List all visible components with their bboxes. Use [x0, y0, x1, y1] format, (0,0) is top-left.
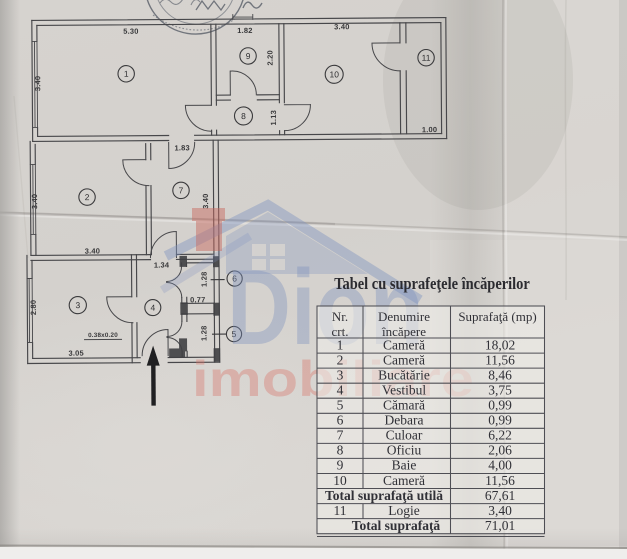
svg-text:4: 4	[337, 383, 344, 398]
svg-text:3,40: 3,40	[488, 503, 512, 518]
svg-text:6,22: 6,22	[488, 428, 512, 443]
svg-text:0.38x0.20: 0.38x0.20	[88, 332, 118, 339]
svg-text:11,56: 11,56	[485, 352, 515, 367]
svg-text:Culoar: Culoar	[386, 428, 423, 443]
svg-text:1.13: 1.13	[269, 110, 278, 125]
svg-text:Debara: Debara	[385, 413, 424, 428]
svg-text:Denumire: Denumire	[378, 309, 430, 324]
svg-text:Cămară: Cămară	[383, 398, 425, 413]
svg-text:Cameră: Cameră	[383, 473, 425, 488]
svg-text:Nr.: Nr.	[332, 309, 348, 324]
svg-text:Tabel cu suprafeţele încăperil: Tabel cu suprafeţele încăperilor	[334, 275, 530, 293]
svg-text:3: 3	[75, 300, 80, 310]
svg-text:Total suprafaţă utilă: Total suprafaţă utilă	[325, 488, 443, 503]
svg-text:1.28: 1.28	[199, 326, 208, 341]
svg-text:67,61: 67,61	[485, 488, 515, 503]
svg-text:3.40: 3.40	[30, 194, 39, 209]
svg-text:Logie: Logie	[388, 503, 420, 518]
svg-text:10: 10	[333, 473, 347, 488]
svg-text:1.00: 1.00	[422, 125, 437, 134]
svg-text:2: 2	[337, 352, 344, 367]
svg-text:10: 10	[329, 69, 339, 79]
svg-text:11,56: 11,56	[485, 473, 515, 488]
svg-text:Cameră: Cameră	[383, 337, 425, 352]
svg-text:3,75: 3,75	[488, 383, 512, 398]
svg-text:Baie: Baie	[392, 458, 417, 473]
svg-text:Oficiu: Oficiu	[387, 443, 422, 458]
svg-text:8: 8	[241, 111, 246, 121]
svg-text:2: 2	[85, 192, 90, 202]
svg-text:3.05: 3.05	[68, 349, 83, 358]
svg-text:Total suprafaţă: Total suprafaţă	[352, 518, 441, 533]
svg-text:2,06: 2,06	[488, 443, 512, 458]
svg-text:5: 5	[337, 398, 344, 413]
svg-text:1: 1	[337, 337, 344, 352]
svg-text:11: 11	[334, 503, 347, 518]
svg-text:2.80: 2.80	[29, 300, 38, 315]
svg-text:2.20: 2.20	[266, 50, 275, 65]
svg-text:3.40: 3.40	[334, 22, 349, 31]
svg-text:1.83: 1.83	[174, 143, 189, 152]
svg-text:9: 9	[337, 458, 344, 473]
svg-text:1.82: 1.82	[237, 26, 252, 35]
svg-text:18,02: 18,02	[485, 337, 515, 352]
svg-text:5.30: 5.30	[123, 27, 138, 36]
svg-text:0.77: 0.77	[190, 295, 205, 304]
svg-text:1: 1	[124, 69, 129, 79]
svg-text:3.40: 3.40	[85, 246, 100, 255]
svg-text:0,99: 0,99	[488, 413, 512, 428]
svg-text:7: 7	[337, 428, 344, 443]
svg-text:3: 3	[337, 367, 344, 382]
svg-text:4: 4	[150, 303, 155, 313]
svg-text:8,46: 8,46	[488, 367, 512, 382]
svg-text:8: 8	[337, 443, 344, 458]
svg-text:7: 7	[179, 185, 184, 195]
svg-text:Bucătărie: Bucătărie	[378, 367, 430, 382]
svg-text:Cameră: Cameră	[383, 352, 425, 367]
svg-text:1.34: 1.34	[154, 260, 170, 269]
svg-text:1.28: 1.28	[200, 272, 209, 287]
svg-text:9: 9	[246, 51, 251, 61]
svg-text:0,99: 0,99	[488, 398, 512, 413]
svg-text:Suprafaţă (mp): Suprafaţă (mp)	[458, 309, 536, 324]
svg-text:71,01: 71,01	[485, 518, 515, 533]
svg-text:Vestibul: Vestibul	[382, 383, 427, 398]
svg-text:3.40: 3.40	[201, 194, 210, 209]
svg-text:3.40: 3.40	[33, 76, 42, 91]
svg-text:11: 11	[422, 53, 431, 63]
svg-text:4,00: 4,00	[488, 458, 512, 473]
svg-text:6: 6	[337, 413, 344, 428]
